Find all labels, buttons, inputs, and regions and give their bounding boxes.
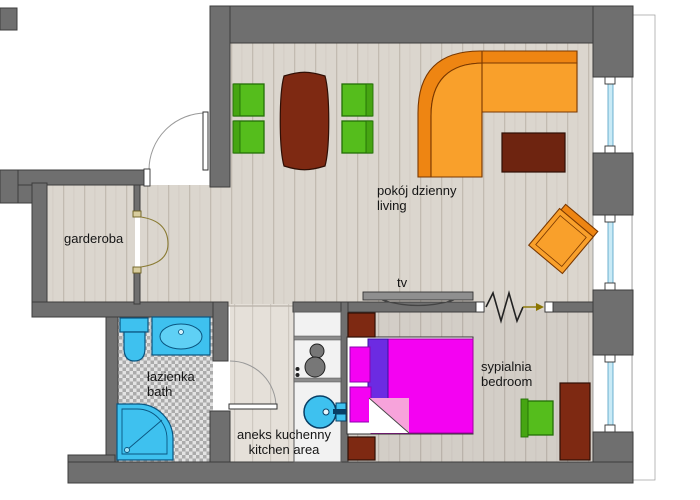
entrance-door-frame xyxy=(144,169,150,186)
bathroom-left-wall xyxy=(106,317,118,463)
washbasin xyxy=(152,317,210,355)
bed-pillow-2 xyxy=(350,387,371,422)
tv-partition-right-endcap xyxy=(545,302,553,312)
room-label-living: pokój dzienny living xyxy=(377,183,457,213)
window-pillar-1 xyxy=(593,153,633,215)
bedside-cabinet-top xyxy=(348,313,375,337)
room-label-bath-pl: łazienka xyxy=(147,369,195,384)
toilet-bowl xyxy=(124,332,145,361)
coffee-table xyxy=(502,133,565,172)
dining-table xyxy=(280,72,329,170)
bed-pillow-1 xyxy=(350,347,370,382)
room-label-kitchen-pl: aneks kuchenny xyxy=(228,427,340,442)
washbasin-bowl xyxy=(160,324,202,349)
closet-partition-lower xyxy=(134,273,140,304)
washbasin-tap xyxy=(179,330,184,335)
dining-chair-1 xyxy=(233,84,264,116)
room-label-living-pl: pokój dzienny xyxy=(377,183,457,198)
hallway-floor xyxy=(140,185,230,303)
shower-drain xyxy=(125,448,130,453)
kitchen-sink-drain xyxy=(323,409,329,415)
bedroom-chair xyxy=(521,399,553,437)
dining-chair-4 xyxy=(342,121,373,153)
left-wall xyxy=(32,183,47,317)
kitchen-counter xyxy=(294,312,341,338)
bedside-cabinet-bottom xyxy=(348,437,375,460)
bottom-wall xyxy=(68,462,633,483)
room-label-living-en: living xyxy=(377,198,457,213)
tv-label: tv xyxy=(397,275,407,290)
room-label-bedroom-pl: sypialnia xyxy=(481,359,532,374)
floor-plan: garderoba pokój dzienny living tv łazien… xyxy=(0,0,700,500)
room-label-kitchen: aneks kuchenny kitchen area xyxy=(228,427,340,457)
kitchen-faucet-top xyxy=(336,403,346,410)
facade-band xyxy=(632,15,655,480)
floor-plan-canvas xyxy=(0,0,700,500)
window-glass-3 xyxy=(608,361,613,426)
stove-knob-1 xyxy=(296,367,300,371)
bathroom-door-leaf xyxy=(229,404,277,409)
room-label-garderoba: garderoba xyxy=(64,231,123,246)
dining-chair-2 xyxy=(233,121,264,153)
top-wall xyxy=(210,6,594,43)
room-label-bedroom-en: bedroom xyxy=(481,374,532,389)
bed xyxy=(347,337,473,434)
bathroom-right-wall-lower xyxy=(210,411,230,465)
kitchen-faucet-spout xyxy=(333,409,347,414)
bifold-jamb-top xyxy=(133,211,141,217)
room-label-bath: łazienka bath xyxy=(147,369,195,399)
stove-burner-large xyxy=(305,357,325,377)
tv-screen xyxy=(363,292,473,300)
tv-partition-left-endcap xyxy=(476,302,484,312)
bathroom-right-wall-upper xyxy=(213,302,228,361)
window-glass-1 xyxy=(608,83,613,147)
entry-side-wall xyxy=(210,6,230,187)
kitchen-sink-basin xyxy=(304,396,336,428)
top-right-corner-wall xyxy=(593,6,633,77)
closet-partition-upper xyxy=(134,185,140,212)
entrance-door-leaf xyxy=(203,112,208,170)
bifold-jamb-bottom xyxy=(133,267,141,273)
bedroom-wardrobe xyxy=(560,383,590,460)
window-wall xyxy=(593,15,655,480)
entrance-door-arc xyxy=(149,113,206,170)
dining-chair-3 xyxy=(342,84,373,116)
window-glass-2 xyxy=(608,221,613,284)
bathroom-top-wall xyxy=(32,302,228,317)
window-pillar-2 xyxy=(593,290,633,355)
room-label-kitchen-en: kitchen area xyxy=(228,442,340,457)
party-wall-stub-left xyxy=(0,170,18,203)
party-wall-stub-top xyxy=(0,8,17,30)
tv-partition-left xyxy=(293,302,484,312)
toilet-tank xyxy=(120,318,148,332)
room-label-bedroom: sypialnia bedroom xyxy=(481,359,532,389)
stove-knob-2 xyxy=(296,373,300,377)
kitchen-divider-2 xyxy=(294,378,341,382)
room-label-bath-en: bath xyxy=(147,384,195,399)
kitchen-faucet-bottom xyxy=(336,414,346,421)
kitchen-divider-1 xyxy=(294,336,341,340)
stove-burner-small xyxy=(310,344,324,358)
